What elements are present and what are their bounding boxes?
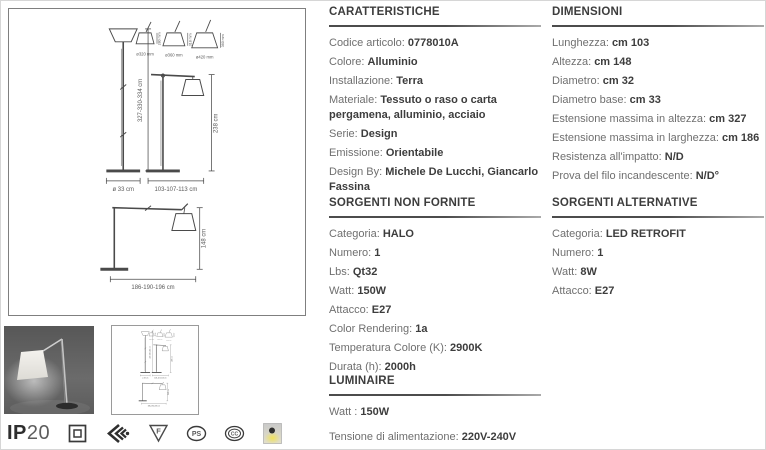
certification-row: IP20 F PS CC	[7, 422, 283, 444]
spec-label: Diametro:	[552, 75, 603, 87]
spec-label: Temperatura Colore (K):	[329, 342, 450, 354]
f-mark-icon: F	[148, 423, 169, 444]
spec-row: Resistenza all'impatto: N/D	[552, 150, 764, 165]
spec-label: Estensione massima in altezza:	[552, 113, 709, 125]
spec-row: Watt: 8W	[552, 265, 764, 280]
spec-row: Materiale: Tessuto o raso o carta pergam…	[329, 93, 541, 123]
spec-row: Attacco: E27	[329, 303, 541, 318]
spec-row: Diametro base: cm 33	[552, 93, 764, 108]
spec-value: Qt32	[353, 266, 377, 278]
spec-label: Durata (h):	[329, 361, 385, 373]
spec-value: 1	[374, 247, 380, 259]
chevron-certification-icon	[105, 423, 131, 444]
spec-row: Numero: 1	[552, 246, 764, 261]
spec-label: Numero:	[329, 247, 374, 259]
spec-value: 2900K	[450, 342, 482, 354]
spec-value: 1	[597, 247, 603, 259]
spec-label: Lbs:	[329, 266, 353, 278]
section-sorgenti-non-fornite: SORGENTI NON FORNITE Categoria: HALONume…	[329, 197, 541, 379]
spec-value: 8W	[580, 266, 597, 278]
technical-drawing-panel	[8, 8, 306, 316]
spec-row: Estensione massima in larghezza: cm 186	[552, 131, 764, 146]
spec-value: E27	[372, 304, 392, 316]
spec-label: Color Rendering:	[329, 323, 415, 335]
section-title-caratteristiche: CARATTERISTICHE	[329, 6, 541, 27]
spec-value: HALO	[383, 228, 414, 240]
product-photo-thumbnail[interactable]	[4, 326, 94, 414]
ip-rating-value: 20	[27, 422, 50, 444]
spec-label: Altezza:	[552, 56, 594, 68]
spec-label: Colore:	[329, 56, 368, 68]
spec-value: 220V-240V	[462, 431, 516, 443]
spec-label: Diametro base:	[552, 94, 630, 106]
caratteristiche-rows: Codice articolo: 0778010AColore: Allumin…	[329, 36, 541, 195]
spec-label: Resistenza all'impatto:	[552, 151, 665, 163]
dimensioni-rows: Lunghezza: cm 103Altezza: cm 148Diametro…	[552, 36, 764, 184]
section-luminaire: LUMINAIRE Watt : 150WTensione di aliment…	[329, 375, 541, 450]
spec-value: cm 32	[603, 75, 634, 87]
spec-label: Attacco:	[329, 304, 372, 316]
spec-label: Numero:	[552, 247, 597, 259]
spec-value: E27	[595, 285, 615, 297]
spec-row: Emissione: Orientabile	[329, 146, 541, 161]
section-title-luminaire: LUMINAIRE	[329, 375, 541, 396]
spec-row: Durata (h): 2000h	[329, 360, 541, 375]
spec-value: cm 327	[709, 113, 746, 125]
spec-label: Watt:	[329, 285, 357, 297]
spec-row: Serie: Design	[329, 127, 541, 142]
sorgenti-alternative-rows: Categoria: LED RETROFITNumero: 1Watt: 8W…	[552, 227, 764, 299]
spec-row: Attacco: E27	[552, 284, 764, 299]
spec-row: Codice articolo: 0778010A	[329, 36, 541, 51]
spec-row: Diametro: cm 32	[552, 74, 764, 89]
spec-value: Terra	[396, 75, 423, 87]
lamp-photo-icon	[262, 423, 283, 444]
spec-row: Lunghezza: cm 103	[552, 36, 764, 51]
section-sorgenti-alternative: SORGENTI ALTERNATIVE Categoria: LED RETR…	[552, 197, 764, 303]
spec-label: Emissione:	[329, 147, 386, 159]
spec-row: Installazione: Terra	[329, 74, 541, 89]
spec-value: Alluminio	[368, 56, 418, 68]
spec-label: Materiale:	[329, 94, 380, 106]
spec-value: cm 186	[722, 132, 759, 144]
spec-row: Numero: 1	[329, 246, 541, 261]
spec-label: Tensione di alimentazione:	[329, 431, 462, 443]
drawing-thumbnail-image	[112, 326, 198, 414]
spec-label: Serie:	[329, 128, 361, 140]
class-ii-icon	[67, 423, 88, 444]
section-caratteristiche: CARATTERISTICHE Codice articolo: 0778010…	[329, 6, 541, 199]
section-dimensioni: DIMENSIONI Lunghezza: cm 103Altezza: cm …	[552, 6, 764, 188]
section-title-dimensioni: DIMENSIONI	[552, 6, 764, 27]
spec-label: Categoria:	[552, 228, 606, 240]
f-mark-letter: F	[156, 426, 161, 435]
lamp-photo	[4, 326, 94, 414]
spec-row: Temperatura Colore (K): 2900K	[329, 341, 541, 356]
spec-value: cm 33	[630, 94, 661, 106]
spec-row: Lbs: Qt32	[329, 265, 541, 280]
spec-value: 1a	[415, 323, 427, 335]
spec-row: Colore: Alluminio	[329, 55, 541, 70]
spec-value: 0778010A	[408, 37, 459, 49]
spec-label: Codice articolo:	[329, 37, 408, 49]
spec-label: Prova del filo incandescente:	[552, 170, 696, 182]
section-title-sorgenti-alternative: SORGENTI ALTERNATIVE	[552, 197, 764, 218]
spec-value: N/D°	[696, 170, 719, 182]
spec-label: Categoria:	[329, 228, 383, 240]
spec-value: Design	[361, 128, 398, 140]
spec-row: Altezza: cm 148	[552, 55, 764, 70]
ip-rating-prefix: IP	[7, 422, 27, 444]
spec-label: Installazione:	[329, 75, 396, 87]
spec-row: Estensione massima in altezza: cm 327	[552, 112, 764, 127]
ccc-mark-icon: CC	[224, 423, 245, 444]
spec-label: Attacco:	[552, 285, 595, 297]
spec-label: Watt:	[552, 266, 580, 278]
spec-value: N/D	[665, 151, 684, 163]
spec-value: Orientabile	[386, 147, 443, 159]
spec-label: Design By:	[329, 166, 385, 178]
pse-mark-icon: PS	[186, 423, 207, 444]
pse-mark-letters: PS	[192, 431, 202, 438]
ip-rating: IP20	[7, 422, 50, 444]
spec-value: cm 148	[594, 56, 631, 68]
ccc-mark-letters: CC	[231, 431, 239, 437]
spec-label: Lunghezza:	[552, 37, 612, 49]
drawing-thumbnail[interactable]	[111, 325, 199, 415]
spec-row: Tensione di alimentazione: 220V-240V	[329, 430, 541, 445]
spec-row: Color Rendering: 1a	[329, 322, 541, 337]
spec-row: Categoria: LED RETROFIT	[552, 227, 764, 242]
spec-row: Prova del filo incandescente: N/D°	[552, 169, 764, 184]
section-title-sorgenti-non-fornite: SORGENTI NON FORNITE	[329, 197, 541, 218]
spec-value: LED RETROFIT	[606, 228, 686, 240]
spec-row: Categoria: HALO	[329, 227, 541, 242]
spec-value: cm 103	[612, 37, 649, 49]
spec-row: Watt: 150W	[329, 284, 541, 299]
spec-label: Watt :	[329, 406, 360, 418]
luminaire-rows: Watt : 150WTensione di alimentazione: 22…	[329, 405, 541, 445]
spec-label: Estensione massima in larghezza:	[552, 132, 722, 144]
spec-value: 150W	[360, 406, 389, 418]
spec-row: Design By: Michele De Lucchi, Giancarlo …	[329, 165, 541, 195]
spec-value: 2000h	[385, 361, 416, 373]
sorgenti-non-fornite-rows: Categoria: HALONumero: 1Lbs: Qt32Watt: 1…	[329, 227, 541, 375]
spec-value: 150W	[357, 285, 386, 297]
technical-drawing	[9, 9, 305, 315]
spec-row: Watt : 150W	[329, 405, 541, 420]
product-spec-sheet: ø 33 cm 327-330-334 cm ø320 mm ø360 mm ø…	[0, 0, 766, 450]
